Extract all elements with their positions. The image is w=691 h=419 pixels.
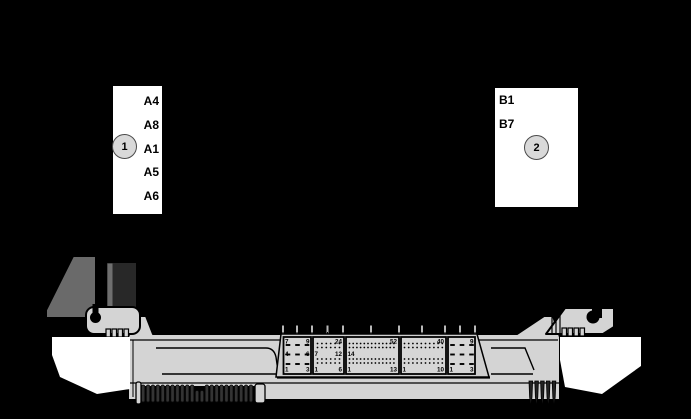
connector-block-24pin: 24 7 12 1 6 [313,337,344,374]
svg-text:12: 12 [335,351,343,358]
connector-block-9pin-left: 7 9 4 6 1 3 [284,337,312,374]
loom-end-cap-left [136,382,141,404]
svg-text:13: 13 [390,367,398,374]
svg-text:10: 10 [437,367,445,374]
svg-text:40: 40 [437,339,445,346]
svg-text:52: 52 [390,339,398,346]
ecu-connector-diagram: A4 A8 A1 A5 A6 1 B1 B7 2 [0,0,691,419]
white-callout-left [52,337,130,394]
svg-text:6: 6 [338,367,342,374]
svg-text:1: 1 [403,367,407,374]
svg-text:3: 3 [306,367,310,374]
svg-text:7: 7 [315,351,319,358]
svg-text:1: 1 [285,367,289,374]
svg-text:9: 9 [470,339,474,346]
svg-text:14: 14 [348,351,356,358]
connector-block-9pin-right: 9 1 3 [448,337,475,374]
svg-text:4: 4 [285,351,289,358]
white-callout-right [560,337,641,394]
svg-text:1: 1 [348,367,352,374]
svg-text:7: 7 [285,339,289,346]
ecu-side-view-drawing: 7 9 4 6 1 3 24 7 12 1 6 52 14 1 13 [0,0,691,419]
right-hook-circle [587,311,600,324]
svg-text:6: 6 [306,351,310,358]
left-keyhole-circle [90,312,101,323]
loom-end-cap-right [255,384,265,403]
connector-block-52pin: 52 14 1 13 [346,337,399,374]
svg-text:9: 9 [306,339,310,346]
svg-text:1: 1 [315,367,319,374]
svg-text:1: 1 [450,367,454,374]
connector-block-40pin: 40 1 10 [401,337,446,374]
svg-text:24: 24 [335,339,343,346]
svg-text:3: 3 [470,367,474,374]
